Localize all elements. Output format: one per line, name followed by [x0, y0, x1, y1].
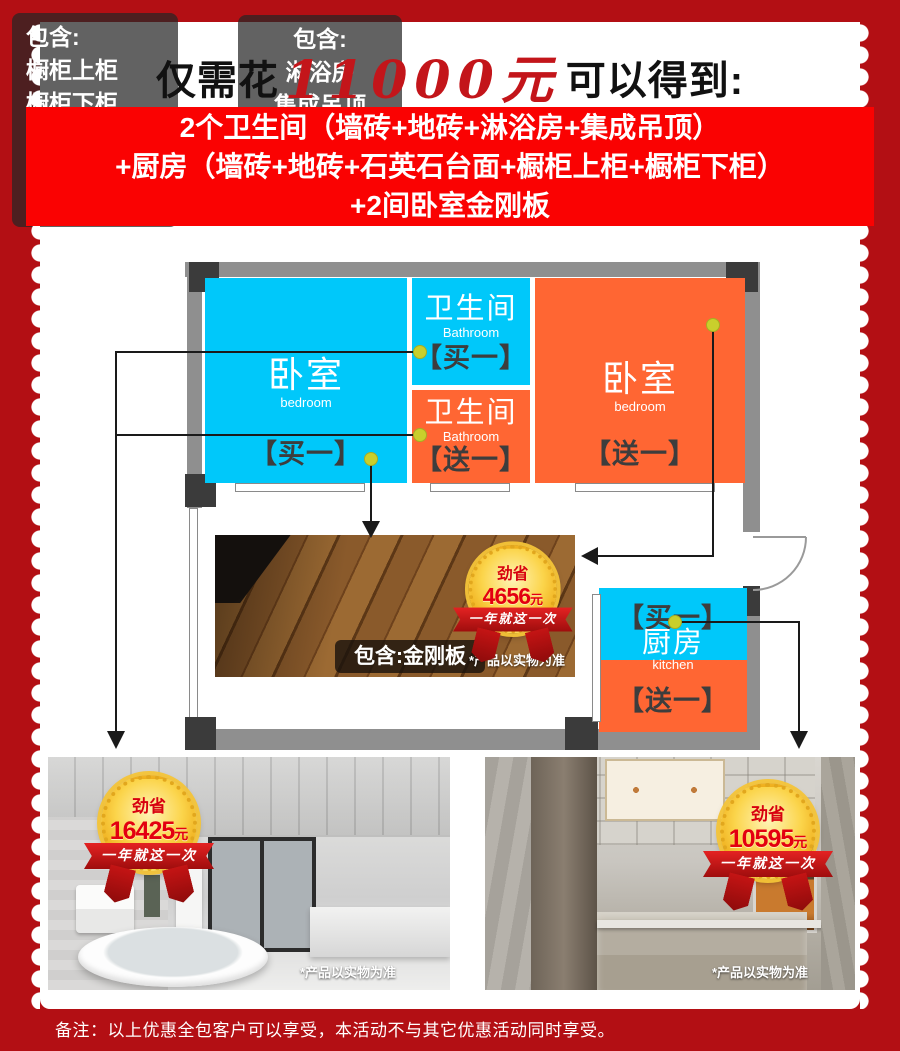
room-tag-free: 【送一】 — [535, 432, 745, 471]
wall-right-upper — [743, 262, 760, 532]
badge-label: 劲省 — [472, 561, 553, 584]
bathtub-decor — [78, 927, 268, 987]
offer-line-1: 2个卫生间（墙砖+地砖+淋浴房+集成吊顶） — [180, 108, 721, 147]
badge-ribbon: 一年就这一次 — [703, 851, 833, 877]
promo-poster: { "palette":{ "background_red":"#b30f14"… — [0, 0, 900, 1051]
room-label: 厨房 — [599, 628, 747, 658]
window-kitchen-left — [592, 594, 601, 722]
kitchen-free-half: kitchen 【送一】 — [599, 660, 747, 732]
footer-note: 备注：以上优惠全包客户可以享受，本活动不与其它优惠活动同时享受。 — [55, 1016, 615, 1041]
page-title: 仅需花11000元可以得到: — [0, 38, 900, 113]
room-label: 卧室 bedroom — [205, 356, 407, 409]
offer-banner: 2个卫生间（墙砖+地砖+淋浴房+集成吊顶） +厨房（墙砖+地砖+石英石台面+橱柜… — [26, 107, 874, 226]
books-decor — [215, 535, 320, 603]
room-bathroom-top: 卫生间 Bathroom 【买一】 — [412, 278, 530, 385]
wall-top — [185, 262, 760, 277]
bathroom-savings-badge: 劲省 16425元 一年就这一次 — [84, 775, 214, 907]
wall-bottom — [185, 729, 760, 750]
countertop-decor — [597, 920, 827, 928]
pillar-decor — [485, 757, 531, 990]
room-label-en: kitchen — [599, 656, 747, 672]
title-prefix: 仅需花 — [156, 59, 279, 103]
vanity-decor — [310, 907, 450, 957]
room-tag-buy: 【买一】 — [205, 432, 407, 471]
kitchen-buy-half: 【买一】 厨房 — [599, 588, 747, 660]
wall-corner-bottom-left — [185, 717, 216, 750]
room-label: 卫生间 Bathroom — [412, 294, 530, 340]
badge-tails — [453, 630, 573, 667]
badge-tails — [84, 867, 214, 907]
window-bedroom-right — [575, 483, 715, 492]
room-bathroom-bottom: 卫生间 Bathroom 【送一】 — [412, 390, 530, 483]
kitchen-disclaimer: *产品以实物为准 — [712, 962, 808, 981]
title-price: 11000元 — [279, 50, 566, 111]
offer-line-3: +2间卧室金刚板 — [350, 186, 550, 225]
badge-ribbon: 一年就这一次 — [453, 608, 573, 632]
room-tag-free: 【送一】 — [599, 679, 747, 718]
room-label: 卧室 bedroom — [535, 360, 745, 413]
window-bathroom — [430, 483, 510, 492]
room-bedroom-left: 卧室 bedroom 【买一】 — [205, 278, 407, 483]
badge-tails — [703, 875, 833, 915]
room-kitchen: 【买一】 厨房 kitchen 【送一】 — [599, 588, 747, 732]
window-left — [189, 508, 198, 720]
window-bedroom-left — [235, 483, 365, 492]
title-suffix: 可以得到: — [566, 59, 744, 103]
badge-label: 劲省 — [724, 800, 812, 825]
badge-ribbon: 一年就这一次 — [84, 843, 214, 869]
bathroom-disclaimer: *产品以实物为准 — [300, 962, 396, 981]
badge-label: 劲省 — [105, 792, 193, 817]
room-tag-free: 【送一】 — [412, 438, 530, 477]
offer-line-2: +厨房（墙砖+地砖+石英石台面+橱柜上柜+橱柜下柜） — [115, 147, 785, 186]
cabinet-column-decor — [531, 757, 597, 990]
room-bedroom-right: 卧室 bedroom 【送一】 — [535, 278, 745, 483]
room-tag-buy: 【买一】 — [412, 336, 530, 375]
wall-left — [187, 262, 202, 508]
floor-savings-badge: 劲省 4656元 一年就这一次 — [453, 545, 573, 666]
kitchen-savings-badge: 劲省 10595元 一年就这一次 — [703, 783, 833, 915]
